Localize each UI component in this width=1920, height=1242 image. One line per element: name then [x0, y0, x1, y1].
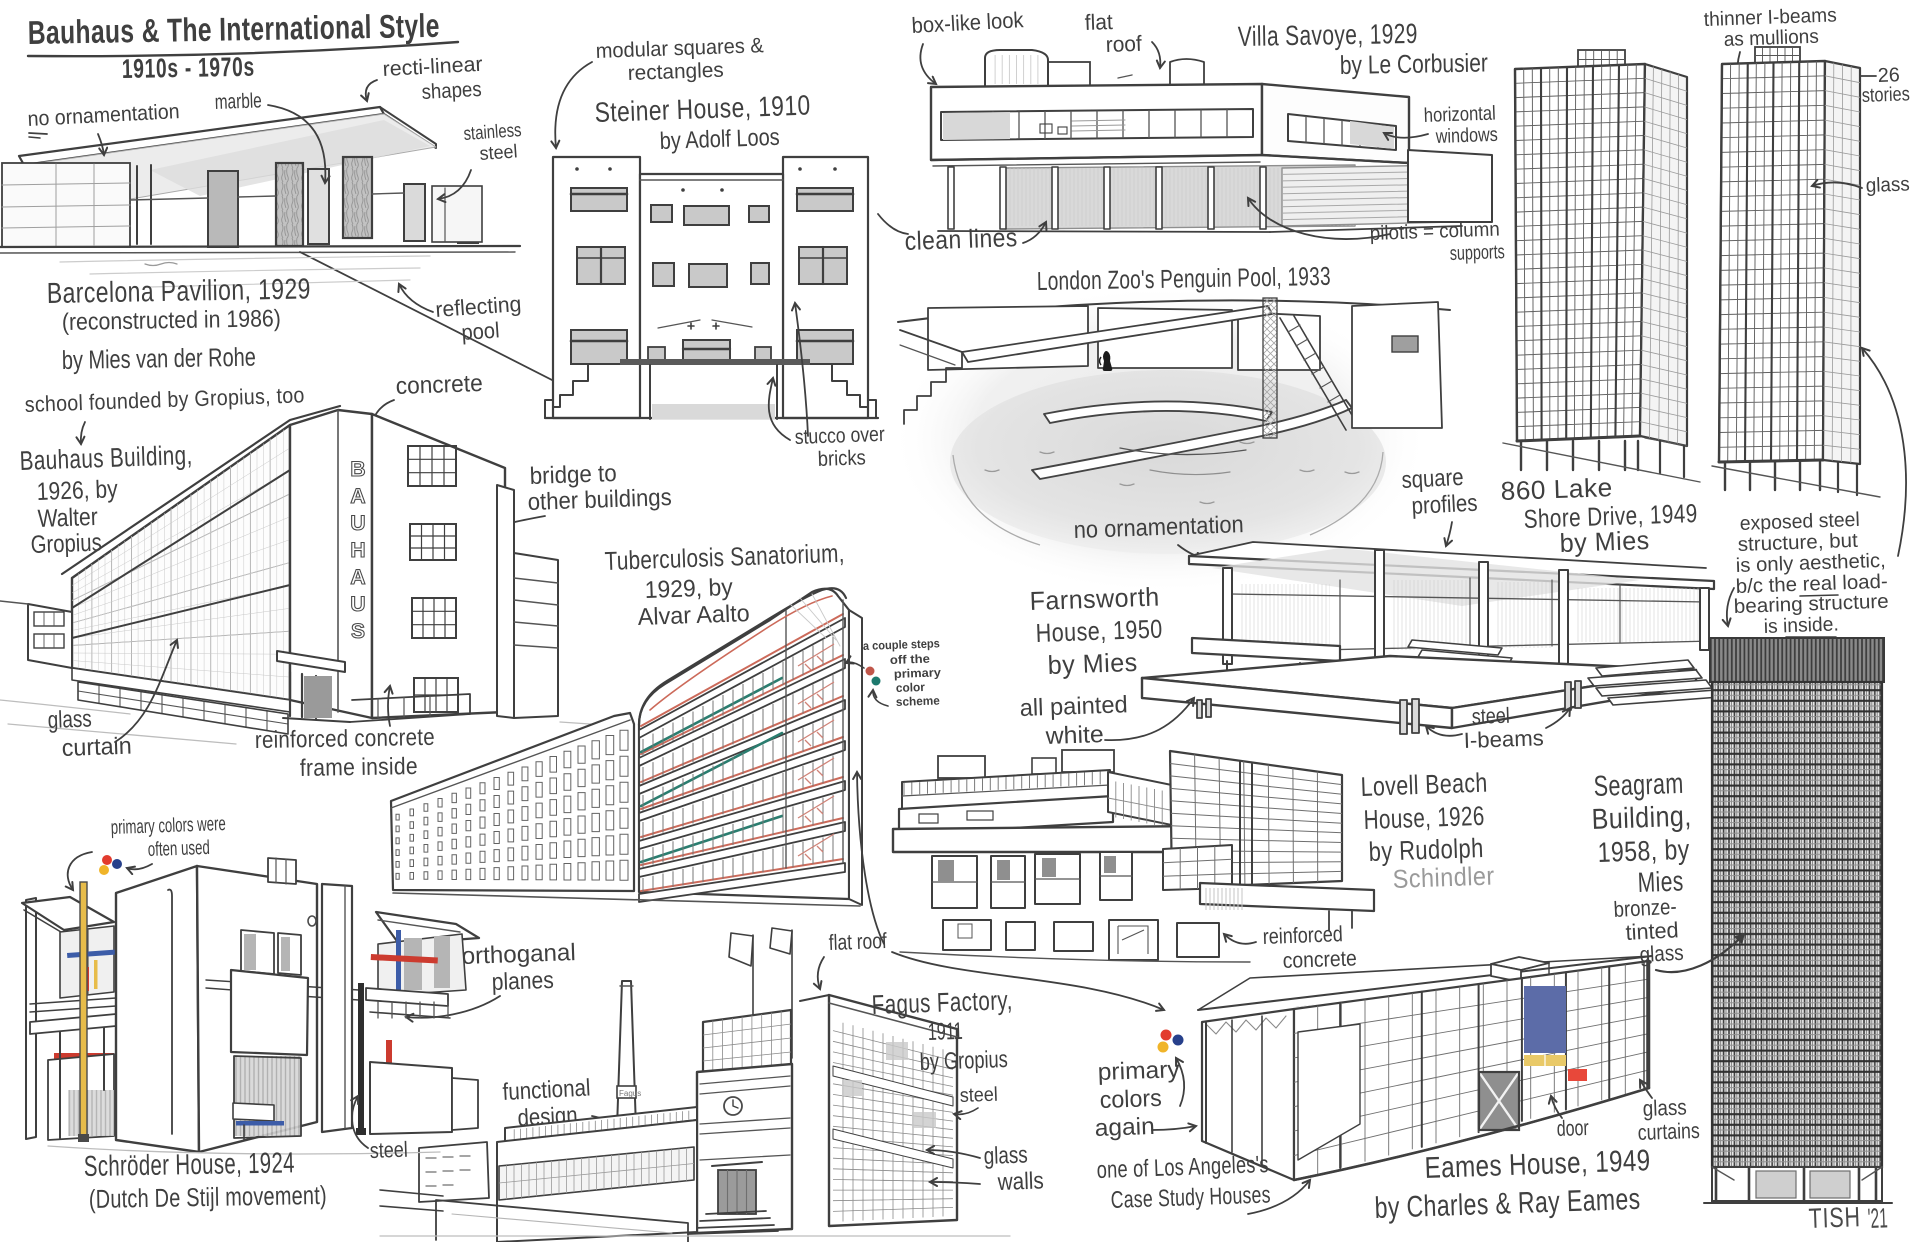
- svg-text:Fagus Factory,: Fagus Factory,: [871, 985, 1013, 1020]
- svg-text:TISH: TISH: [1808, 1201, 1861, 1234]
- svg-text:Schröder House, 1924: Schröder House, 1924: [84, 1147, 296, 1183]
- svg-text:1910s - 1970s: 1910s - 1970s: [122, 52, 256, 84]
- svg-text:B: B: [350, 458, 365, 481]
- svg-text:Schindler: Schindler: [1392, 860, 1495, 894]
- svg-text:rectangles: rectangles: [627, 59, 724, 85]
- svg-text:stories: stories: [1861, 83, 1910, 107]
- svg-text:curtains: curtains: [1637, 1118, 1700, 1145]
- svg-text:primary: primary: [1097, 1056, 1180, 1086]
- svg-text:orthoganal: orthoganal: [461, 939, 576, 970]
- svg-text:I-beams: I-beams: [1463, 725, 1544, 753]
- svg-text:other buildings: other buildings: [527, 484, 672, 516]
- svg-text:color: color: [896, 680, 926, 695]
- svg-text:Farnsworth: Farnsworth: [1029, 581, 1160, 616]
- svg-text:House, 1950: House, 1950: [1035, 614, 1163, 648]
- svg-text:a couple steps: a couple steps: [863, 636, 941, 653]
- svg-text:scheme: scheme: [896, 693, 941, 709]
- svg-text:pool: pool: [461, 317, 501, 345]
- svg-text:Alvar Aalto: Alvar Aalto: [637, 600, 750, 631]
- svg-text:windows: windows: [1435, 124, 1499, 148]
- svg-text:by Mies van der Rohe: by Mies van der Rohe: [62, 342, 256, 375]
- svg-text:A: A: [350, 566, 365, 589]
- svg-text:1926, by: 1926, by: [36, 475, 118, 506]
- svg-text:A: A: [350, 485, 365, 508]
- svg-text:planes: planes: [491, 967, 554, 996]
- svg-text:by Adolf Loos: by Adolf Loos: [659, 124, 780, 155]
- svg-text:steel: steel: [1471, 703, 1510, 729]
- svg-text:colors: colors: [1099, 1085, 1162, 1114]
- svg-text:white: white: [1044, 721, 1104, 750]
- svg-text:again: again: [1094, 1113, 1155, 1142]
- svg-text:Bauhaus & The International St: Bauhaus & The International Style: [27, 7, 440, 51]
- svg-text:concrete: concrete: [1282, 945, 1357, 973]
- svg-text:bricks: bricks: [817, 446, 866, 471]
- svg-text:glass: glass: [1639, 940, 1684, 967]
- svg-text:Lovell Beach: Lovell Beach: [1360, 768, 1488, 802]
- svg-text:glass: glass: [983, 1141, 1028, 1170]
- svg-text:by Mies: by Mies: [1559, 525, 1650, 558]
- svg-text:Fagus: Fagus: [619, 1089, 641, 1098]
- svg-text:by Le Corbusier: by Le Corbusier: [1340, 47, 1489, 80]
- svg-text:walls: walls: [996, 1167, 1044, 1196]
- svg-text:clean lines: clean lines: [904, 222, 1018, 256]
- svg-text:1929, by: 1929, by: [644, 574, 733, 604]
- svg-text:(Dutch De Stijl movement): (Dutch De Stijl movement): [89, 1180, 327, 1214]
- svg-text:Case Study Houses: Case Study Houses: [1110, 1181, 1271, 1214]
- svg-text:is inside.: is inside.: [1763, 613, 1839, 638]
- svg-text:profiles: profiles: [1411, 490, 1478, 520]
- svg-text:flat roof: flat roof: [828, 928, 888, 955]
- svg-text:frame inside: frame inside: [300, 753, 418, 782]
- svg-text:door: door: [1556, 1115, 1589, 1141]
- svg-text:(reconstructed in 1986): (reconstructed in 1986): [62, 305, 281, 336]
- svg-text:off the: off the: [890, 652, 931, 667]
- svg-text:U: U: [350, 512, 365, 535]
- svg-text:primary colors were: primary colors were: [110, 813, 226, 839]
- svg-text:primary: primary: [894, 665, 942, 681]
- svg-text:functional: functional: [502, 1074, 591, 1106]
- svg-text:by Gropius: by Gropius: [919, 1046, 1008, 1076]
- svg-text:glass: glass: [1642, 1094, 1687, 1121]
- svg-text:reinforced concrete: reinforced concrete: [255, 724, 435, 754]
- svg-text:Seagram: Seagram: [1593, 768, 1684, 803]
- svg-text:Bauhaus Building,: Bauhaus Building,: [19, 440, 193, 476]
- svg-text:London Zoo's Penguin Pool, 193: London Zoo's Penguin Pool, 1933: [1037, 261, 1331, 296]
- svg-text:glass: glass: [47, 705, 92, 734]
- svg-text:shapes: shapes: [421, 78, 482, 104]
- svg-text:Building,: Building,: [1591, 801, 1692, 836]
- svg-text:reinforced: reinforced: [1262, 921, 1343, 949]
- svg-text:steel: steel: [369, 1137, 408, 1163]
- svg-text:all painted: all painted: [1019, 691, 1128, 722]
- svg-text:steel: steel: [479, 141, 518, 165]
- svg-text:often used: often used: [147, 837, 210, 861]
- svg-text:Mies: Mies: [1637, 865, 1684, 898]
- svg-text:1958, by: 1958, by: [1597, 834, 1690, 868]
- svg-text:by Mies: by Mies: [1047, 647, 1138, 680]
- svg-text:1911: 1911: [927, 1018, 963, 1046]
- svg-text:square: square: [1401, 464, 1464, 494]
- svg-text:glass: glass: [1865, 173, 1910, 197]
- svg-text:marble: marble: [214, 89, 262, 114]
- svg-text:Villa Savoye, 1929: Villa Savoye, 1929: [1238, 18, 1419, 52]
- svg-text:steel: steel: [959, 1084, 998, 1107]
- svg-text:supports: supports: [1449, 241, 1505, 265]
- svg-text:H: H: [350, 539, 365, 562]
- svg-text:House, 1926: House, 1926: [1363, 801, 1485, 835]
- svg-text:concrete: concrete: [395, 370, 483, 400]
- svg-text:roof: roof: [1105, 31, 1143, 57]
- svg-text:U: U: [350, 593, 365, 616]
- svg-text:'21: '21: [1867, 1202, 1888, 1234]
- svg-text:S: S: [351, 620, 365, 643]
